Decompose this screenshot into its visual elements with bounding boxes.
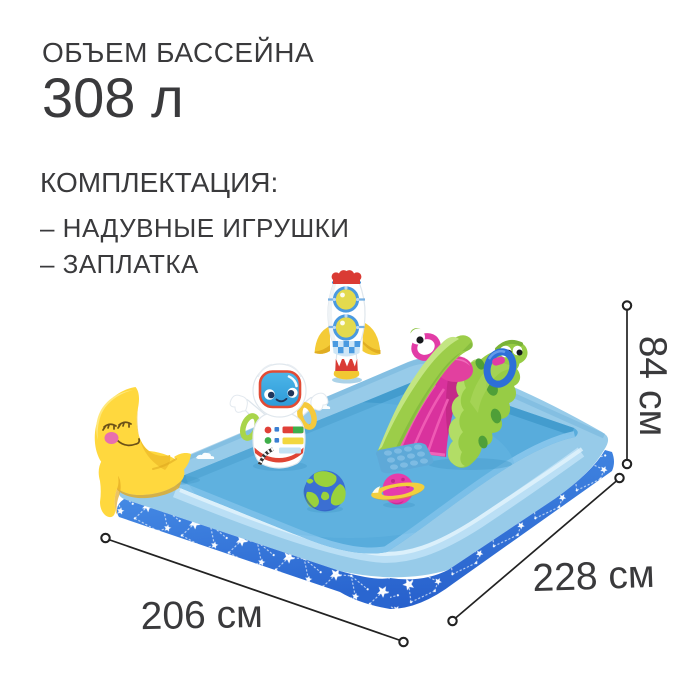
svg-text:206 см: 206 см [140,593,263,638]
svg-text:84 см: 84 см [631,336,674,437]
svg-text:228 см: 228 см [532,553,656,600]
